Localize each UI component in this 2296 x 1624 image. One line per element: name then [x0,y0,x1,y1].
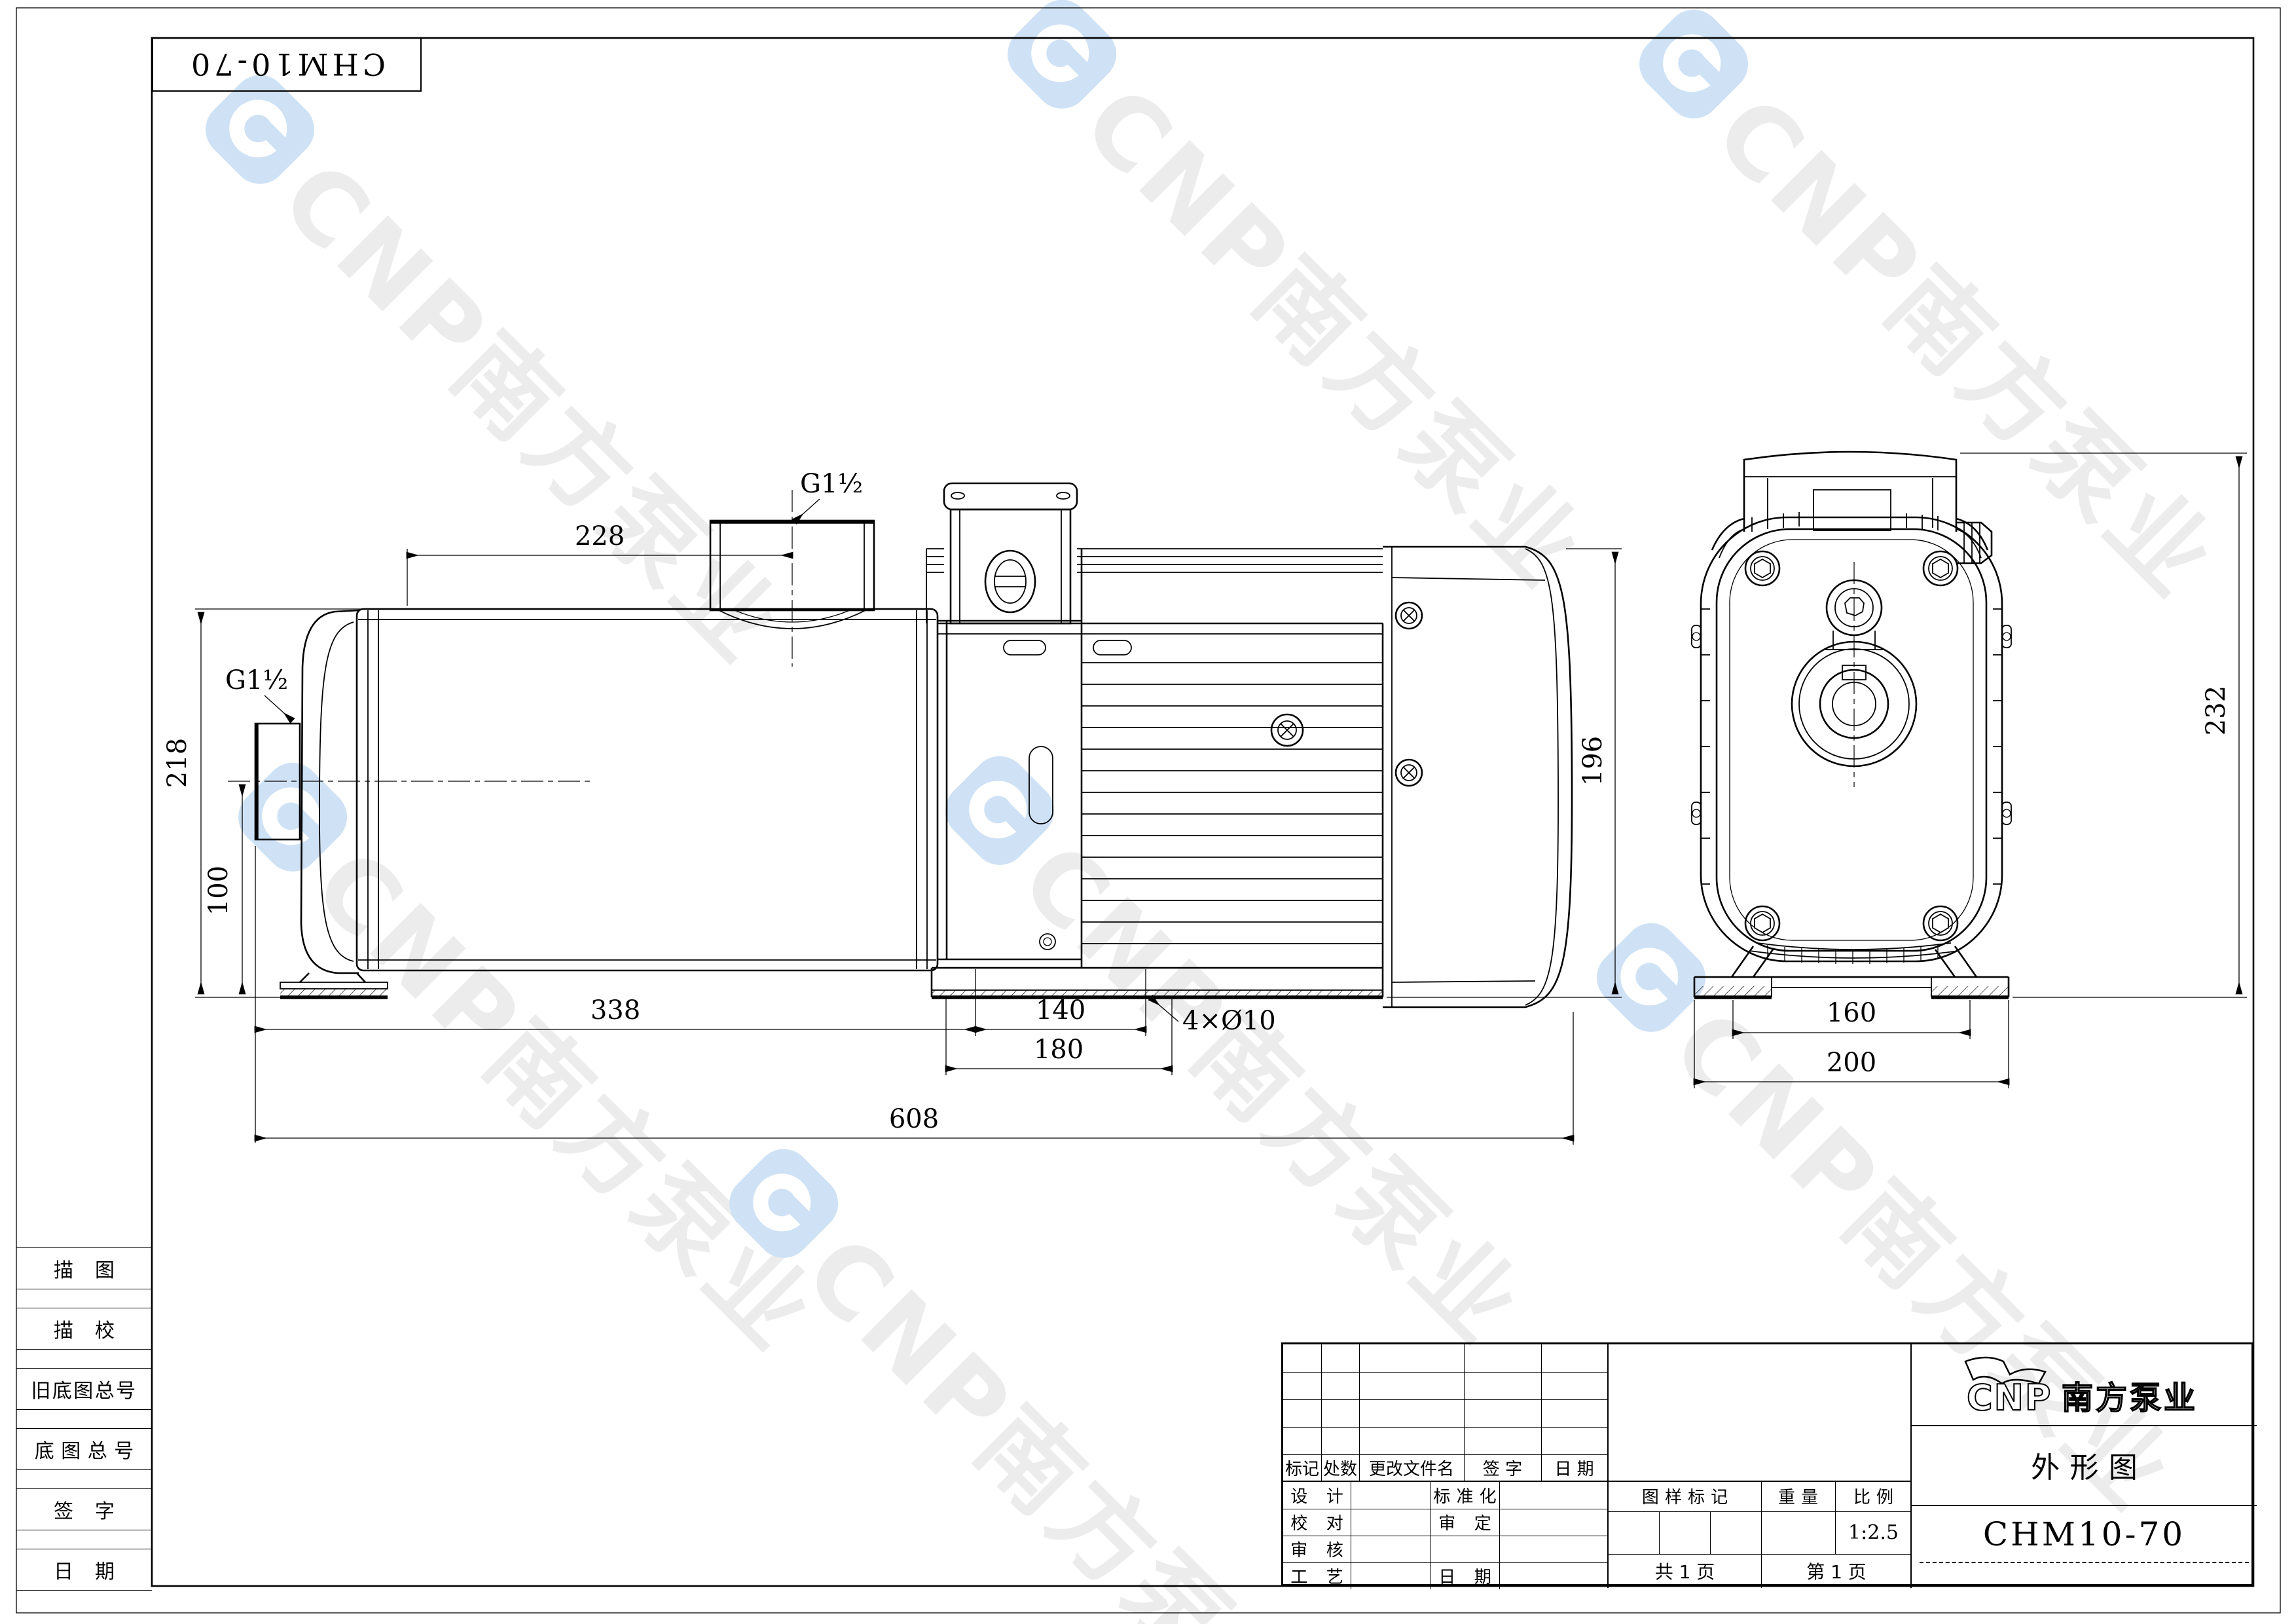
dim-140: 140 [1036,995,1085,1025]
sidebar-blank [16,1289,152,1308]
header-weight: 重量 [1761,1481,1835,1511]
total-pages: 共 1 页 [1609,1554,1761,1588]
margin-label-column: 描图 描校 旧底图总号 底图总号 签字 日期 [16,1247,152,1617]
sidebar-item-old-master-no: 旧底图总号 [16,1369,152,1410]
dim-338: 338 [591,995,640,1025]
label-standardize: 标准化 [1430,1482,1499,1509]
dim-196: 196 [1578,736,1608,786]
face-fin-ticks [1701,609,2002,884]
col-header-mark: 标记 [1283,1454,1321,1481]
signature-grid: 设计 标准化 校对 审定 审核 工艺 日期 [1283,1481,1607,1588]
sidebar-item-tracing: 描图 [16,1248,152,1289]
page-number: 第 1 页 [1761,1554,1912,1588]
label-date: 日期 [1430,1562,1499,1589]
header-model-box: CHM10-70 [152,38,422,92]
sidebar-blank [16,1591,152,1617]
brand-cell: CNP 南方泵业 [1912,1344,2257,1425]
cnp-brand-logo: CNP 南方泵业 [1947,1352,2222,1418]
label-approve: 审定 [1430,1509,1499,1536]
doc-section: CNP 南方泵业 外形图 CHM10-70 [1910,1344,2255,1588]
stamp-section: 图样标记 重量 比例 1:2.5 共 1 页 第 1 页 [1607,1344,1910,1588]
pump-foot [280,973,388,997]
sidebar-blank [16,1350,152,1369]
col-header-count: 处数 [1321,1454,1359,1481]
sidebar-blank [16,1530,152,1549]
drawing-sheet: CNP南方泵业 CNP南方泵业 CNP南方泵业 CNP南方泵业 CNP南方泵业 … [0,0,2296,1624]
brand-cn-text: 南方泵业 [2062,1380,2198,1416]
model-underline [1920,1562,2249,1563]
header-model-text: CHM10-70 [187,46,386,82]
dim-180: 180 [1034,1035,1084,1065]
change-record-table: 标记 处数 更改文件名 签 字 日 期 [1283,1344,1607,1481]
front-view [1692,452,2011,997]
sidebar-item-date: 日期 [16,1549,152,1591]
sidebar-item-trace-check: 描校 [16,1308,152,1350]
discharge-port [710,490,874,667]
sidebar-blank [16,1410,152,1429]
header-drawing-mark: 图样标记 [1609,1481,1761,1511]
label-process: 工艺 [1283,1562,1351,1589]
sidebar-item-master-no: 底图总号 [16,1429,152,1470]
sidebar-item-signature: 签字 [16,1489,152,1530]
dim-228: 228 [575,521,625,551]
scale-value: 1:2.5 [1835,1511,1912,1554]
fan-cover [1383,547,1572,1007]
label-port-top: G1½ [800,469,863,499]
dim-200: 200 [1827,1048,1876,1078]
label-check: 校对 [1283,1509,1351,1536]
motor-body [938,623,1383,968]
label-design: 设计 [1283,1482,1351,1509]
col-header-file: 更改文件名 [1359,1454,1464,1481]
doc-title: 外形图 [1912,1425,2257,1505]
dim-608: 608 [889,1104,939,1134]
hex-bolts [1745,551,1958,940]
dim-100: 100 [204,866,234,915]
brand-cnp-text: CNP [1967,1377,2052,1418]
col-header-sign: 签 字 [1464,1454,1541,1481]
dim-232: 232 [2201,686,2231,735]
motor-base [932,968,1383,997]
label-base-holes: 4×Ø10 [1182,1006,1276,1036]
label-audit: 审核 [1283,1536,1351,1562]
label-port-left: G1½ [225,665,288,695]
dim-160: 160 [1827,998,1876,1028]
side-view [228,483,1572,1007]
col-header-date: 日 期 [1541,1454,1607,1481]
shaft-boss [1792,562,1916,787]
terminal-box-front [1744,452,1992,563]
terminal-box [944,483,1077,623]
header-scale: 比例 [1835,1481,1912,1511]
sidebar-blank [16,1470,152,1489]
doc-model: CHM10-70 [1912,1505,2257,1564]
dim-218: 218 [162,738,192,788]
title-block: 标记 处数 更改文件名 签 字 日 期 设计 标准化 校对 审定 审核 工艺 日… [1281,1342,2253,1586]
